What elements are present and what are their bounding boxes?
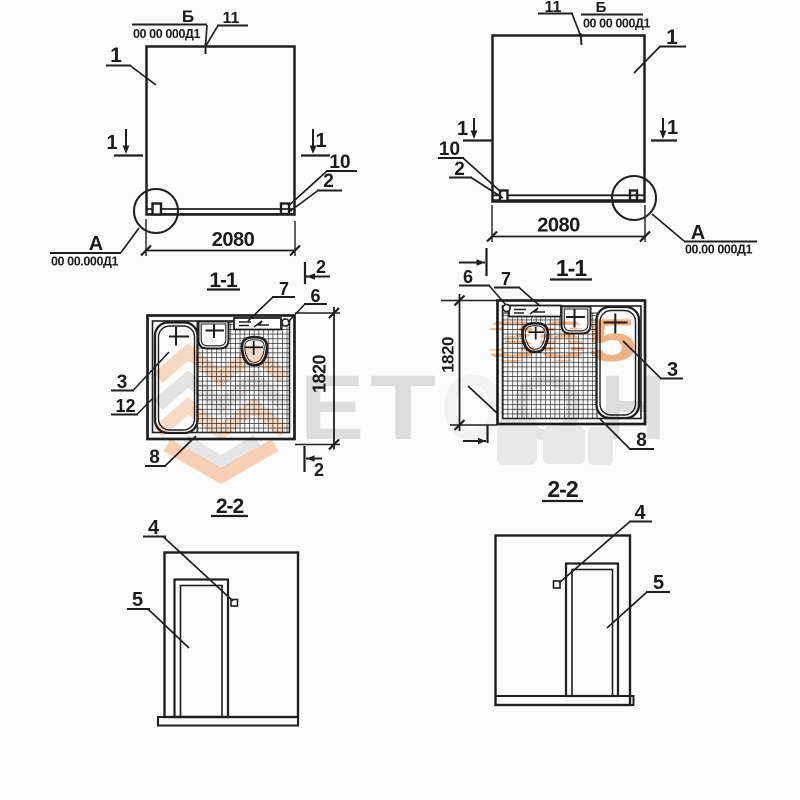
svg-text:Б: Б [182,7,194,26]
svg-text:A: A [89,233,103,255]
svg-text:2080: 2080 [212,229,255,251]
svg-text:2-2: 2-2 [216,495,244,518]
svg-text:12: 12 [115,396,135,416]
svg-text:00 00.000Д1: 00 00.000Д1 [51,255,119,269]
svg-text:A: A [691,222,705,244]
svg-text:2080: 2080 [537,215,580,237]
svg-text:1-1: 1-1 [556,255,587,281]
svg-text:10: 10 [439,139,460,160]
svg-text:2-2: 2-2 [547,476,577,502]
svg-text:365: 365 [487,307,637,374]
svg-text:8: 8 [149,447,160,468]
svg-text:6: 6 [463,267,473,287]
svg-text:1: 1 [457,118,468,140]
svg-text:1: 1 [106,132,117,154]
svg-text:2: 2 [323,171,334,192]
svg-text:00.00 000Д1: 00.00 000Д1 [685,243,753,257]
svg-text:1: 1 [667,117,678,139]
svg-text:2: 2 [316,257,326,277]
svg-text:Б: Б [596,0,607,16]
svg-text:2: 2 [314,460,324,480]
svg-text:00 00 000Д1: 00 00 000Д1 [583,17,651,31]
svg-text:Т: Т [370,357,436,459]
svg-text:7: 7 [501,269,511,289]
svg-text:1: 1 [315,130,326,152]
svg-text:10: 10 [329,152,350,173]
svg-text:5: 5 [653,572,664,594]
svg-text:1: 1 [110,44,122,67]
svg-text:Е: Е [300,357,364,459]
svg-text:11: 11 [223,10,240,27]
svg-text:5: 5 [132,589,143,611]
svg-text:00 00 000Д1: 00 00 000Д1 [133,27,201,41]
